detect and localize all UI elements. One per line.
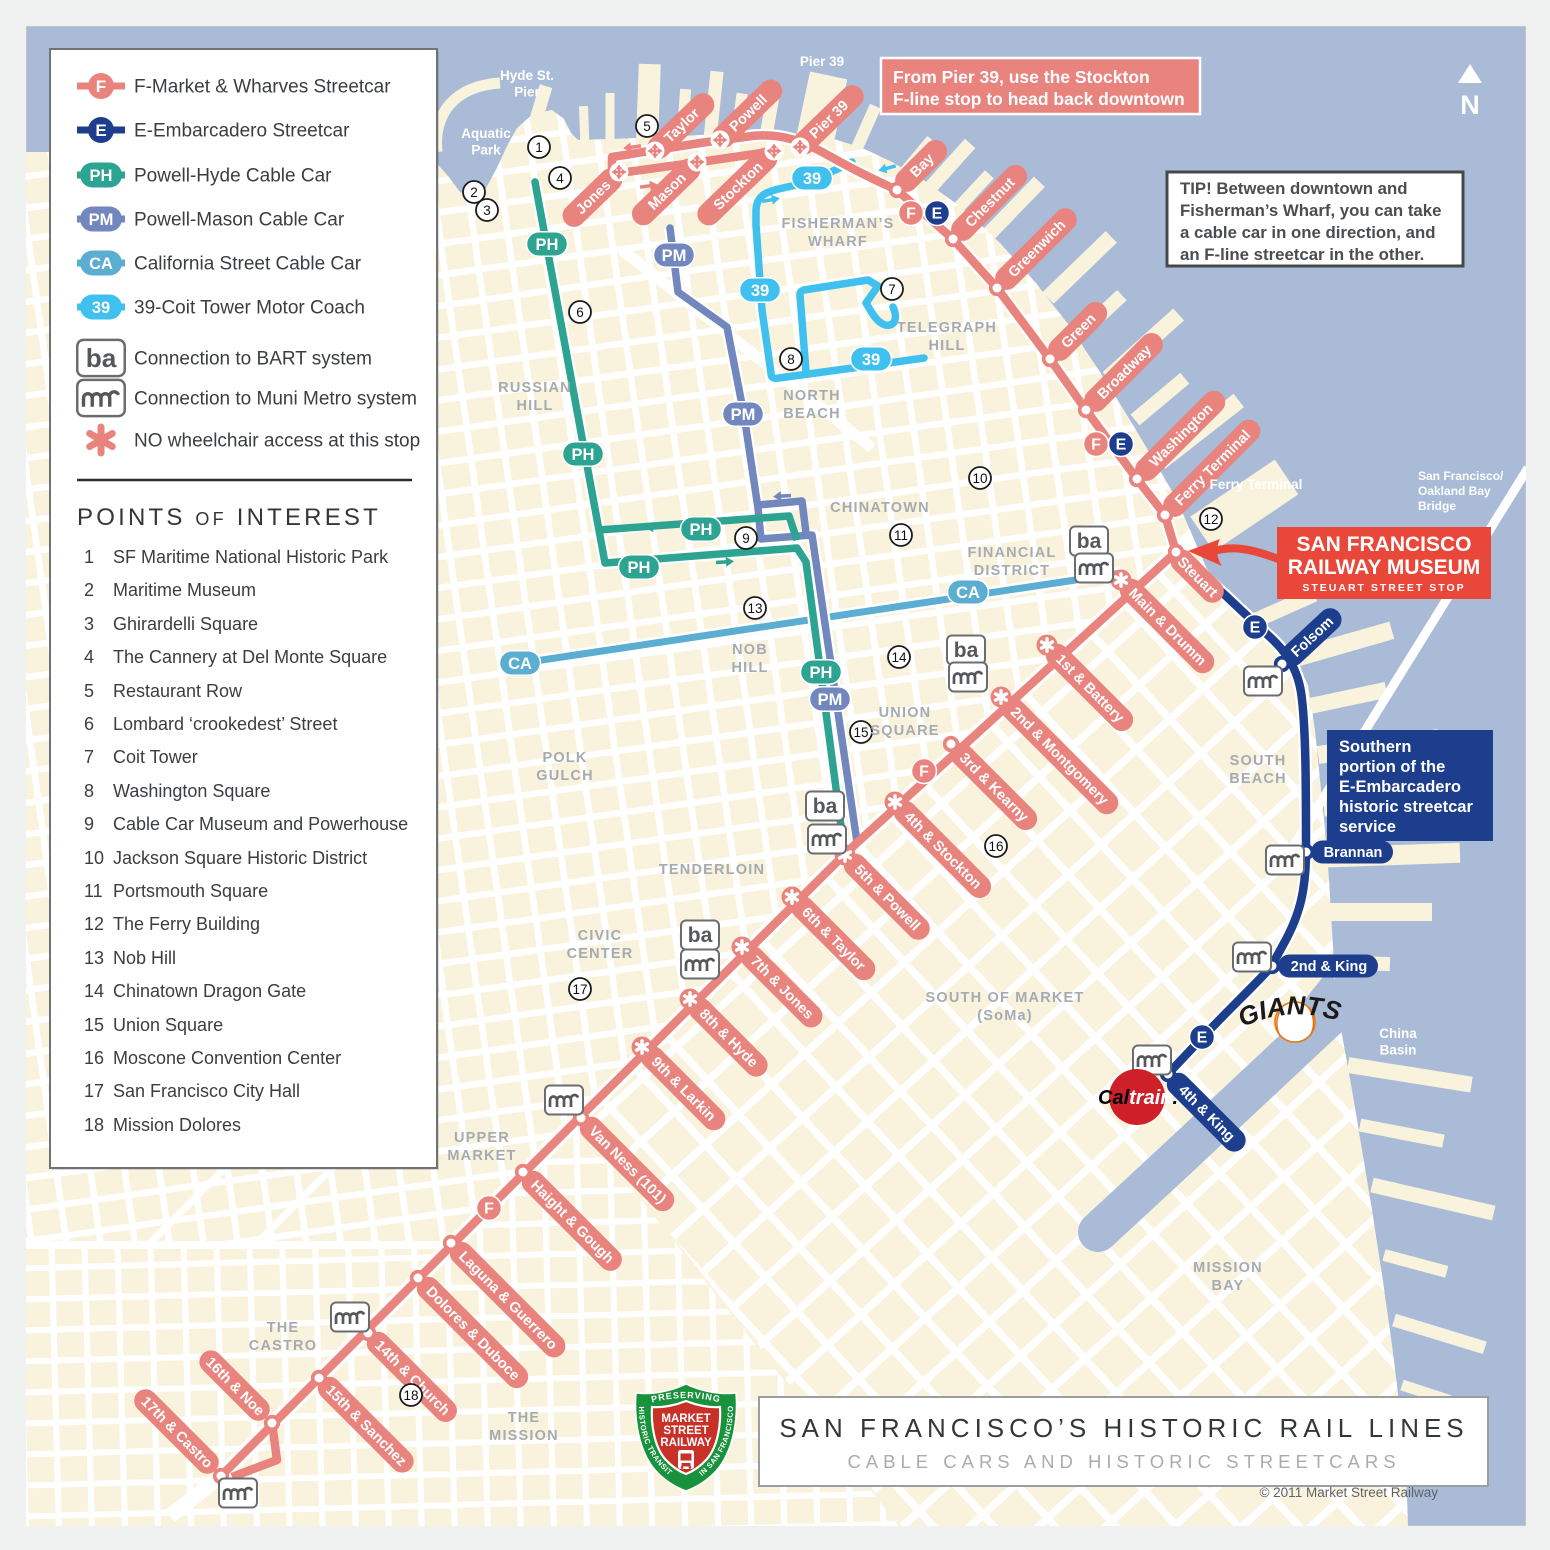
svg-text:Brannan: Brannan bbox=[1324, 845, 1383, 861]
svg-text:Connection to Muni Metro syste: Connection to Muni Metro system bbox=[134, 389, 417, 410]
svg-text:California Street Cable Car: California Street Cable Car bbox=[134, 254, 362, 275]
svg-text:NO wheelchair access at this s: NO wheelchair access at this stop bbox=[134, 431, 420, 452]
svg-text:18: 18 bbox=[84, 1115, 104, 1135]
svg-text:2nd & King: 2nd & King bbox=[1291, 959, 1368, 975]
svg-text:Chinatown Dragon Gate: Chinatown Dragon Gate bbox=[113, 981, 306, 1001]
svg-text:TIP! Between downtown and: TIP! Between downtown and bbox=[1180, 179, 1407, 198]
svg-text:3: 3 bbox=[483, 203, 491, 218]
svg-text:4: 4 bbox=[556, 171, 564, 186]
svg-text:San Francisco City Hall: San Francisco City Hall bbox=[113, 1081, 300, 1101]
svg-text:4: 4 bbox=[84, 647, 94, 667]
svg-text:F: F bbox=[919, 764, 929, 781]
svg-text:CA: CA bbox=[508, 655, 532, 673]
svg-text:8: 8 bbox=[787, 352, 795, 367]
svg-text:Moscone Convention Center: Moscone Convention Center bbox=[113, 1048, 341, 1068]
svg-text:3: 3 bbox=[84, 614, 94, 634]
svg-text:17: 17 bbox=[572, 982, 587, 997]
svg-text:17: 17 bbox=[84, 1081, 104, 1101]
svg-text:2: 2 bbox=[84, 580, 94, 600]
svg-text:5: 5 bbox=[84, 681, 94, 701]
svg-text:12: 12 bbox=[84, 914, 104, 934]
svg-text:POINTS OF INTEREST: POINTS OF INTEREST bbox=[77, 504, 381, 531]
svg-text:an F-line streetcar in the oth: an F-line streetcar in the other. bbox=[1180, 245, 1424, 264]
svg-text:Fisherman’s Wharf, you can tak: Fisherman’s Wharf, you can take bbox=[1180, 201, 1441, 220]
svg-text:Powell-Hyde Cable Car: Powell-Hyde Cable Car bbox=[134, 166, 332, 187]
svg-text:E: E bbox=[932, 206, 943, 223]
svg-text:ba: ba bbox=[813, 795, 838, 818]
svg-text:16: 16 bbox=[84, 1048, 104, 1068]
svg-text:1: 1 bbox=[535, 140, 543, 155]
svg-text:9: 9 bbox=[742, 531, 750, 546]
svg-text:E-Embarcadero: E-Embarcadero bbox=[1339, 778, 1461, 796]
svg-text:F-Market & Wharves Streetcar: F-Market & Wharves Streetcar bbox=[134, 77, 391, 98]
svg-text:Connection to BART system: Connection to BART system bbox=[134, 349, 372, 370]
svg-text:PH: PH bbox=[90, 167, 113, 185]
svg-text:STEUART STREET STOP: STEUART STREET STOP bbox=[1302, 582, 1465, 594]
svg-text:F: F bbox=[1091, 437, 1101, 454]
svg-text:PM: PM bbox=[818, 691, 843, 709]
svg-text:Maritime Museum: Maritime Museum bbox=[113, 580, 256, 600]
svg-text:39: 39 bbox=[751, 282, 769, 300]
svg-text:F: F bbox=[484, 1201, 494, 1218]
svg-text:Coit Tower: Coit Tower bbox=[113, 747, 198, 767]
svg-text:E: E bbox=[1250, 620, 1261, 637]
svg-text:39: 39 bbox=[862, 351, 880, 369]
svg-text:ba: ba bbox=[1077, 530, 1102, 553]
svg-text:Southern: Southern bbox=[1339, 738, 1411, 756]
svg-text:PM: PM bbox=[662, 247, 687, 265]
svg-text:SAN FRANCISCO’S HISTORIC RAIL: SAN FRANCISCO’S HISTORIC RAIL LINES bbox=[779, 1413, 1468, 1443]
svg-text:7: 7 bbox=[84, 747, 94, 767]
svg-text:ChinaBasin: ChinaBasin bbox=[1379, 1026, 1417, 1058]
svg-text:11: 11 bbox=[84, 881, 103, 901]
svg-text:Union Square: Union Square bbox=[113, 1015, 223, 1035]
svg-text:1: 1 bbox=[84, 547, 94, 567]
svg-text:Mission Dolores: Mission Dolores bbox=[113, 1115, 241, 1135]
svg-text:13: 13 bbox=[747, 601, 762, 616]
svg-text:Cable Car Museum and Powerhous: Cable Car Museum and Powerhouse bbox=[113, 814, 408, 834]
svg-text:Caltrain.: Caltrain. bbox=[1098, 1087, 1178, 1109]
svg-text:E: E bbox=[1116, 437, 1127, 454]
svg-text:The Ferry Building: The Ferry Building bbox=[113, 914, 260, 934]
svg-text:© 2011 Market Street Railway: © 2011 Market Street Railway bbox=[1259, 1485, 1438, 1500]
svg-text:5: 5 bbox=[643, 119, 651, 134]
svg-text:CHINATOWN: CHINATOWN bbox=[830, 500, 930, 516]
svg-text:Pier 39: Pier 39 bbox=[800, 54, 844, 69]
svg-text:ba: ba bbox=[86, 343, 117, 373]
svg-text:15: 15 bbox=[84, 1015, 104, 1035]
svg-text:9: 9 bbox=[84, 814, 94, 834]
svg-text:ba: ba bbox=[688, 924, 713, 947]
svg-text:CABLE CARS AND HISTORIC STREET: CABLE CARS AND HISTORIC STREETCARS bbox=[847, 1451, 1400, 1472]
svg-text:PH: PH bbox=[536, 236, 559, 254]
svg-text:39: 39 bbox=[92, 299, 110, 317]
svg-text:11: 11 bbox=[894, 528, 908, 543]
svg-text:8: 8 bbox=[84, 781, 94, 801]
svg-text:historic streetcar: historic streetcar bbox=[1339, 798, 1473, 816]
svg-text:F-line stop to head back downt: F-line stop to head back downtown bbox=[893, 89, 1185, 109]
svg-text:SAN FRANCISCO: SAN FRANCISCO bbox=[1296, 533, 1471, 556]
svg-text:PH: PH bbox=[810, 664, 833, 682]
svg-text:Portsmouth Square: Portsmouth Square bbox=[113, 881, 268, 901]
svg-text:39-Coit Tower Motor Coach: 39-Coit Tower Motor Coach bbox=[134, 298, 365, 319]
svg-text:Jackson Square Historic Distri: Jackson Square Historic District bbox=[113, 848, 367, 868]
svg-text:TENDERLOIN: TENDERLOIN bbox=[659, 862, 765, 878]
svg-text:12: 12 bbox=[1203, 512, 1218, 527]
svg-text:The Cannery at Del Monte Squar: The Cannery at Del Monte Square bbox=[113, 647, 387, 667]
svg-text:E: E bbox=[1197, 1030, 1208, 1047]
svg-text:Restaurant Row: Restaurant Row bbox=[113, 681, 243, 701]
svg-text:6: 6 bbox=[84, 714, 94, 734]
svg-text:18: 18 bbox=[403, 1388, 418, 1403]
svg-text:14: 14 bbox=[84, 981, 104, 1001]
svg-text:E: E bbox=[95, 121, 106, 140]
svg-text:STREET: STREET bbox=[663, 1425, 708, 1437]
svg-text:ba: ba bbox=[954, 639, 979, 662]
svg-text:16: 16 bbox=[988, 839, 1003, 854]
svg-text:CA: CA bbox=[89, 255, 113, 273]
svg-text:7: 7 bbox=[888, 282, 896, 297]
svg-text:service: service bbox=[1339, 818, 1396, 836]
svg-text:Washington Square: Washington Square bbox=[113, 781, 270, 801]
svg-text:2: 2 bbox=[470, 185, 478, 200]
svg-text:PH: PH bbox=[572, 446, 595, 464]
svg-text:PM: PM bbox=[731, 406, 756, 424]
svg-text:10: 10 bbox=[972, 471, 987, 486]
svg-text:RAILWAY MUSEUM: RAILWAY MUSEUM bbox=[1288, 556, 1481, 579]
svg-text:F: F bbox=[906, 206, 916, 223]
svg-text:15: 15 bbox=[853, 725, 868, 740]
svg-text:E-Embarcadero Streetcar: E-Embarcadero Streetcar bbox=[134, 121, 350, 142]
svg-text:portion of the: portion of the bbox=[1339, 758, 1445, 776]
svg-text:RAILWAY: RAILWAY bbox=[660, 1437, 712, 1449]
svg-text:PM: PM bbox=[89, 211, 114, 229]
svg-text:F: F bbox=[96, 77, 106, 96]
svg-text:Ghirardelli Square: Ghirardelli Square bbox=[113, 614, 258, 634]
svg-text:Powell-Mason Cable Car: Powell-Mason Cable Car bbox=[134, 210, 345, 231]
svg-text:Lombard ‘crookedest’ Street: Lombard ‘crookedest’ Street bbox=[113, 714, 337, 734]
svg-text:10: 10 bbox=[84, 848, 104, 868]
svg-text:Nob Hill: Nob Hill bbox=[113, 948, 176, 968]
svg-text:Ferry Terminal: Ferry Terminal bbox=[1210, 477, 1303, 492]
svg-text:a cable car in one direction,: a cable car in one direction, and bbox=[1180, 223, 1436, 242]
svg-text:PH: PH bbox=[690, 521, 713, 539]
svg-text:PH: PH bbox=[628, 559, 651, 577]
svg-text:13: 13 bbox=[84, 948, 104, 968]
svg-text:39: 39 bbox=[803, 170, 821, 188]
svg-text:14: 14 bbox=[891, 650, 907, 665]
svg-text:SF Maritime National Historic: SF Maritime National Historic Park bbox=[113, 547, 389, 567]
svg-text:MARKET: MARKET bbox=[661, 1413, 710, 1425]
svg-text:CA: CA bbox=[956, 584, 980, 602]
svg-text:N: N bbox=[1460, 90, 1480, 120]
svg-text:From Pier 39, use the Stockton: From Pier 39, use the Stockton bbox=[893, 67, 1150, 87]
svg-text:6: 6 bbox=[576, 305, 584, 320]
